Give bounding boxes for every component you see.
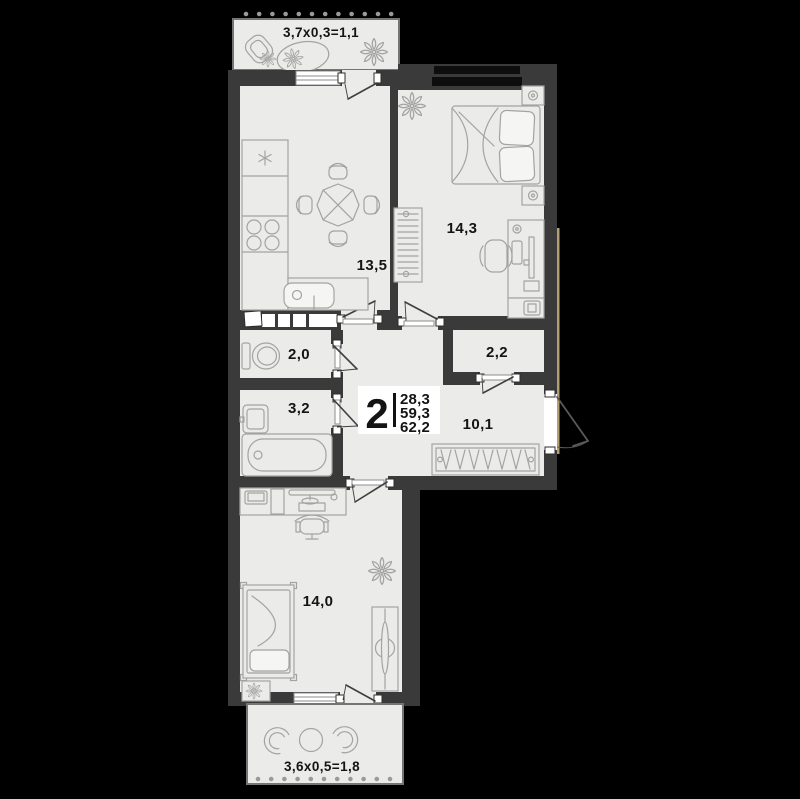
desk-cabinet <box>508 298 544 318</box>
info-box: 2 28,3 59,3 62,2 <box>358 386 440 437</box>
balcony-top-label: 3,7х0,3=1,1 <box>283 25 359 40</box>
dining-table <box>317 184 359 226</box>
hallway-area-label: 10,1 <box>463 416 494 433</box>
bathtub-icon <box>242 434 332 476</box>
radiator-icon <box>394 208 422 282</box>
bathroom-area-label: 3,2 <box>288 400 310 417</box>
chair <box>329 164 347 180</box>
pillow <box>250 650 289 671</box>
nightstand <box>522 186 544 205</box>
room-area-label: 14,0 <box>303 593 334 610</box>
double-bed <box>452 106 540 184</box>
washbasin-icon <box>240 405 268 433</box>
info-divider <box>393 393 396 427</box>
rooms-count-label: 2 <box>365 390 388 437</box>
chair <box>297 196 313 214</box>
kitchen-sink <box>284 283 334 309</box>
kitchen-window <box>296 71 340 85</box>
floor-plan: 3,7х0,3=1,1 <box>0 0 800 799</box>
bedroom-area-label: 14,3 <box>447 220 478 237</box>
total-area-label: 62,2 <box>400 419 430 436</box>
single-bed <box>241 583 297 681</box>
nightstand <box>522 86 544 105</box>
balcony-top: 3,7х0,3=1,1 <box>233 14 399 76</box>
chair <box>329 231 347 247</box>
cabinet-with-plant <box>242 681 270 701</box>
wardrobe-room-area-label: 2,2 <box>486 344 508 361</box>
balcony-bottom: 3,6х0,5=1,8 <box>247 704 403 784</box>
desk <box>508 220 544 298</box>
adjacent-wall-line <box>557 228 560 454</box>
toilet-area-label: 2,0 <box>288 346 310 363</box>
hall-wardrobe <box>432 444 539 475</box>
chair <box>364 196 380 214</box>
utility-box <box>244 311 262 327</box>
desk <box>240 488 346 515</box>
toilet-icon <box>242 343 280 369</box>
balcony-bottom-label: 3,6х0,5=1,8 <box>284 759 360 774</box>
kitchen-area-label: 13,5 <box>357 257 388 274</box>
vent-shaft <box>262 314 337 327</box>
wardrobe-mirror <box>372 607 398 691</box>
